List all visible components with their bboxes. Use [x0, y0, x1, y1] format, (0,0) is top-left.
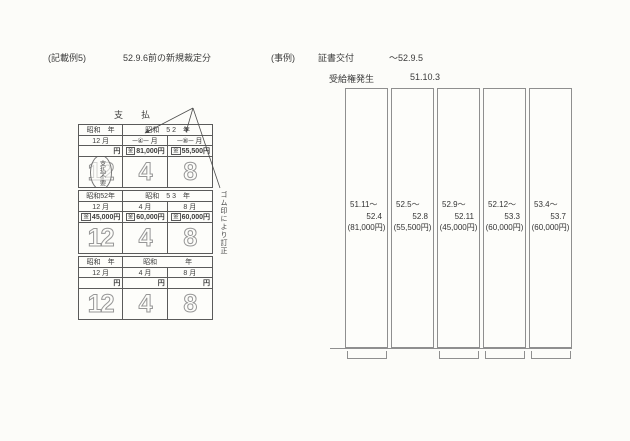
- period-text: 52.12～ 53.3 (60,000円): [484, 199, 525, 234]
- range-bracket-1: [347, 351, 387, 359]
- range-bracket-3: [439, 351, 479, 359]
- big-month-digit: 12: [88, 292, 114, 317]
- amount-value: 円: [158, 278, 165, 288]
- amount-value: 60,000円: [182, 212, 210, 222]
- payment-form: 昭和 年 昭和 5 2 年 12 月 ─④─ 月 ─⑧─ 月 円 金 81,00…: [78, 124, 213, 320]
- month-row: 12 月 4 月 8 月: [79, 268, 212, 278]
- period-amount: (45,000円): [438, 222, 479, 234]
- cert-issue-period: ～52.9.5: [389, 51, 423, 64]
- amount-cell: 円: [123, 278, 167, 288]
- year-cell: 昭和52年: [79, 191, 123, 201]
- document-page: (記載例5) 52.9.6前の新規裁定分 (事例) 証書交付 ～52.9.5 受…: [0, 0, 630, 441]
- big-month-cell: 12: [79, 223, 123, 253]
- entitlement-label: 受給権発生: [329, 72, 374, 85]
- payment-not-required-stamp: 支払不要: [90, 157, 112, 187]
- kin-stamp: 金: [126, 213, 136, 221]
- correction-note: ゴム印により訂正: [218, 191, 228, 255]
- amount-value: 45,000円: [92, 212, 120, 222]
- amount-cell: 金 45,000円: [79, 212, 123, 222]
- amount-cell: 金 60,000円: [123, 212, 167, 222]
- period-column-2: 52.5～ 52.8 (55,500円): [391, 88, 434, 348]
- big-month-cell: 8: [168, 289, 212, 319]
- period-to: 53.3: [484, 211, 525, 223]
- big-month-digit: 4: [139, 226, 152, 251]
- year-cell: 昭和 年: [79, 257, 123, 267]
- period-text: 51.11～ 52.4 (81,000円): [346, 199, 387, 234]
- example-tag: (記載例5): [48, 51, 86, 64]
- entitlement-date: 51.10.3: [410, 72, 440, 82]
- month-cell: 12 月: [79, 136, 123, 145]
- amount-row: 円 円 円: [79, 278, 212, 289]
- year-cell: 昭和 年: [79, 125, 123, 135]
- period-from: 52.12～: [484, 199, 525, 211]
- amount-cell: 金 81,000円: [123, 146, 167, 156]
- month-cell: 8 月: [168, 268, 212, 277]
- range-bracket-4: [485, 351, 525, 359]
- amount-value: 60,000円: [136, 212, 164, 222]
- payment-period-diagram: 51.11～ 52.4 (81,000円) 52.5～ 52.8 (55,500…: [345, 88, 572, 348]
- year-row: 昭和52年 昭和 5 3 年: [79, 191, 212, 202]
- cert-issue-label: 証書交付: [318, 51, 354, 64]
- period-amount: (55,500円): [392, 222, 433, 234]
- month-cell: 4 月: [123, 268, 167, 277]
- period-from: 52.5～: [392, 199, 433, 211]
- period-amount: (60,000円): [530, 222, 571, 234]
- big-month-cell: 4: [123, 223, 167, 253]
- period-amount: (60,000円): [484, 222, 525, 234]
- amount-cell: 円: [79, 278, 123, 288]
- amount-cell: 金 55,500円: [168, 146, 212, 156]
- big-month-cell: 4: [123, 157, 167, 187]
- payment-month-row: 12 4 8: [79, 289, 212, 319]
- period-from: 53.4～: [530, 199, 571, 211]
- payment-month-row: 12 4 8: [79, 223, 212, 253]
- month-cell: 4 月: [123, 202, 167, 211]
- period-column-5: 53.4～ 53.7 (60,000円): [529, 88, 572, 348]
- case-tag: (事例): [271, 51, 295, 64]
- big-month-digit: 12: [88, 226, 114, 251]
- period-from: 52.9～: [438, 199, 479, 211]
- month-cell-corrected: ─⑧─ 月: [168, 136, 212, 145]
- big-month-digit: 8: [183, 160, 196, 185]
- big-month-cell: 12: [79, 289, 123, 319]
- kin-stamp: 金: [171, 147, 181, 155]
- big-month-cell: 8: [168, 223, 212, 253]
- amount-cell: 円: [168, 278, 212, 288]
- big-month-digit: 4: [139, 292, 152, 317]
- amount-row: 円 金 81,000円 金 55,500円: [79, 146, 212, 157]
- amount-value: 円: [113, 146, 120, 156]
- year-row: 昭和 年 昭和 5 2 年: [79, 125, 212, 136]
- period-to: 52.11: [438, 211, 479, 223]
- month-cell: 8 月: [168, 202, 212, 211]
- period-text: 52.5～ 52.8 (55,500円): [392, 199, 433, 234]
- example-title: 52.9.6前の新規裁定分: [123, 51, 211, 64]
- month-row: 12 月 4 月 8 月: [79, 202, 212, 212]
- big-month-cell: 12 支払不要: [79, 157, 123, 187]
- amount-value: 55,500円: [182, 146, 210, 156]
- big-month-digit: 4: [139, 160, 152, 185]
- period-from: 51.11～: [346, 199, 387, 211]
- kin-stamp: 金: [126, 147, 136, 155]
- diagram-baseline: [330, 348, 572, 349]
- payment-form-title: 支 払: [96, 108, 168, 121]
- month-cell: 12 月: [79, 268, 123, 277]
- big-month-digit: 8: [183, 292, 196, 317]
- month-cell-corrected: ─④─ 月: [123, 136, 167, 145]
- amount-value: 81,000円: [136, 146, 164, 156]
- big-month-cell: 8: [168, 157, 212, 187]
- period-column-3: 52.9～ 52.11 (45,000円): [437, 88, 480, 348]
- period-column-1: 51.11～ 52.4 (81,000円): [345, 88, 388, 348]
- period-to: 52.8: [392, 211, 433, 223]
- amount-cell: 円: [79, 146, 123, 156]
- payment-month-row: 12 支払不要 4 8: [79, 157, 212, 187]
- period-to: 52.4: [346, 211, 387, 223]
- year-cell: 昭和 5 3 年: [123, 191, 212, 201]
- range-bracket-5: [531, 351, 571, 359]
- period-column-4: 52.12～ 53.3 (60,000円): [483, 88, 526, 348]
- big-month-digit: 8: [183, 226, 196, 251]
- period-amount: (81,000円): [346, 222, 387, 234]
- month-row: 12 月 ─④─ 月 ─⑧─ 月: [79, 136, 212, 146]
- amount-row: 金 45,000円 金 60,000円 金 60,000円: [79, 212, 212, 223]
- amount-value: 円: [113, 278, 120, 288]
- period-text: 52.9～ 52.11 (45,000円): [438, 199, 479, 234]
- period-text: 53.4～ 53.7 (60,000円): [530, 199, 571, 234]
- year-cell: 昭和 年: [123, 257, 212, 267]
- big-month-cell: 4: [123, 289, 167, 319]
- kin-stamp: 金: [81, 213, 91, 221]
- payment-section-1: 昭和 年 昭和 5 2 年 12 月 ─④─ 月 ─⑧─ 月 円 金 81,00…: [78, 124, 213, 188]
- year-row: 昭和 年 昭和 年: [79, 257, 212, 268]
- amount-cell: 金 60,000円: [168, 212, 212, 222]
- year-cell: 昭和 5 2 年: [123, 125, 212, 135]
- payment-section-2: 昭和52年 昭和 5 3 年 12 月 4 月 8 月 金 45,000円 金 …: [78, 190, 213, 254]
- payment-section-3: 昭和 年 昭和 年 12 月 4 月 8 月 円 円 円: [78, 256, 213, 320]
- period-to: 53.7: [530, 211, 571, 223]
- month-cell: 12 月: [79, 202, 123, 211]
- kin-stamp: 金: [171, 213, 181, 221]
- amount-value: 円: [203, 278, 210, 288]
